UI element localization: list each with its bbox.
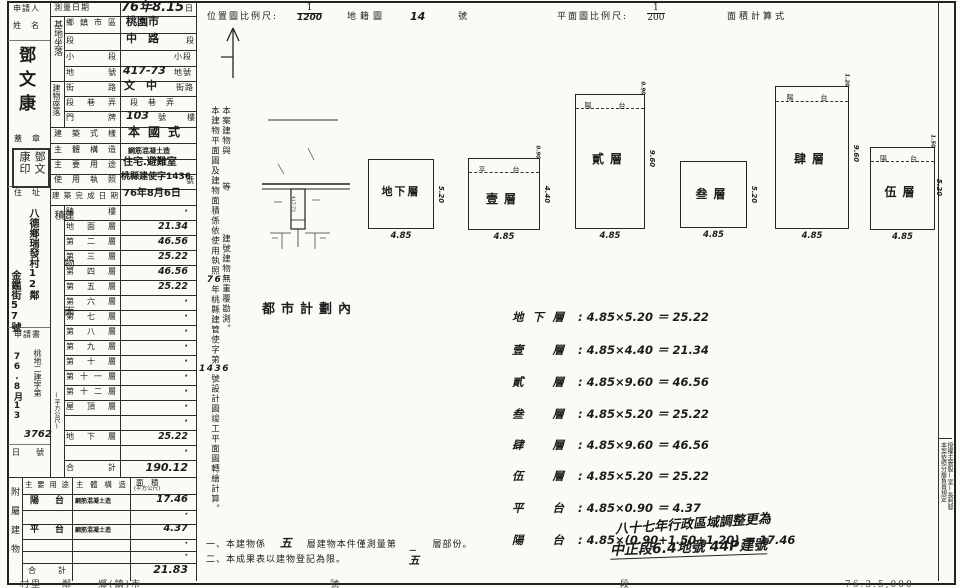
floorplan-strip: 陽 台 0.90 <box>576 95 644 109</box>
info-row-label: 建築式樣 <box>54 130 116 138</box>
application-day-suffix: 日 <box>12 449 21 457</box>
floor-row-label: 第三層 <box>66 253 116 261</box>
site-row-value: 417-73 <box>123 65 166 76</box>
floorplan-width: 4.85 <box>681 231 746 240</box>
floorplan-name: 壹層 <box>469 193 539 205</box>
calc-label: 平台 <box>512 503 564 515</box>
cutoff-text: 76.3.5,000 <box>845 581 914 588</box>
floor-row-label: 第七層 <box>66 313 116 321</box>
building-row-label: 街路 <box>66 84 116 92</box>
floor-row-value: 21.34 <box>124 222 188 232</box>
floorplan-strip: 陽 台 1.20 <box>776 87 848 102</box>
info-row-label: 主體構造 <box>54 146 116 154</box>
annex-header-area-unit: (平方公尺) <box>134 487 160 493</box>
note1-hand-range: 一五 <box>409 548 421 566</box>
floorplan-strip: 陽 台 1.50 <box>871 148 934 162</box>
floor-row-value: · <box>124 312 188 322</box>
strip-label: 陽 台 <box>585 102 636 110</box>
location-map <box>260 108 356 258</box>
site-row-value: 桃園市 <box>126 16 159 27</box>
plan-scale-fraction: 1200 <box>647 4 665 23</box>
floorplan-height: 9.60 <box>852 145 859 162</box>
cutoff-text: 號 <box>330 581 341 588</box>
floor-row-value: · <box>124 342 188 352</box>
site-row-suffix: 小段 <box>174 53 192 61</box>
floorplan-basement: 地下層 4.85 5.20 <box>368 159 434 229</box>
scanned-survey-form: 測量日期 76年8.15 日 位置圖比例尺: 11200 地籍圖 14 號 平面… <box>0 0 960 588</box>
plan-scale-label: 平面圖比例尺: <box>557 13 628 22</box>
calc-row: 伍層: 4.85×5.20 ＝ 25.22 <box>512 471 912 483</box>
building-row-label: 段巷弄 <box>66 99 116 107</box>
floorplan-name: 貳層 <box>576 153 644 165</box>
seal-label: 蓋 章 <box>14 135 41 143</box>
note-a-part1: 本建物平面圖及建物面積係依使用執照 <box>210 106 220 276</box>
annex-row-use: 平台 <box>30 526 64 535</box>
strip-dim: 1.20 <box>844 73 850 87</box>
authority-strip-left: 本案依照分層負責規定 <box>939 442 946 578</box>
note1-prefix: 一、本建物係 <box>206 540 266 550</box>
info-row-value: 鋼筋混凝土造 <box>128 147 170 154</box>
strip-label: 陽 台 <box>880 155 925 163</box>
site-row-label: 地號 <box>66 69 116 77</box>
location-scale-fraction: 11200 <box>297 4 322 23</box>
floor-row-value: 25.22 <box>124 432 188 442</box>
note1-middle: 層建物本件僅測量第 <box>307 540 397 550</box>
floorplan-floor4: 陽 台 1.20 肆層 4.85 9.60 <box>775 86 849 229</box>
address-line1: 八德鄉瑞發村12鄰 <box>27 208 37 328</box>
calc-label: 壹層 <box>512 345 564 357</box>
cutoff-text: 段 <box>620 581 631 588</box>
calc-row: 地下層: 4.85×5.20 ＝ 25.22 <box>512 312 912 324</box>
building-group-label: 建物座落 <box>52 84 60 126</box>
calc-row: 叁層: 4.85×5.20 ＝ 25.22 <box>512 409 912 421</box>
floorplan-height: 4.40 <box>543 185 550 202</box>
info-row-value: 住宅.避難室 <box>123 158 177 168</box>
site-row-label: 段 <box>66 37 116 45</box>
floor-row-value: · <box>124 372 188 382</box>
strip-label: 陽 台 <box>787 94 838 102</box>
calc-formula: : 4.85×0.90 ＝ 4.37 <box>578 501 701 515</box>
note1-hand-floors: 五 <box>280 536 293 550</box>
floorplan-floor5: 陽 台 1.50 伍層 4.85 5.20 <box>870 147 935 230</box>
calc-label: 陽台 <box>512 535 564 547</box>
floorplan-name: 伍層 <box>871 186 934 198</box>
calc-formula: : 4.85×5.20 ＝ 25.22 <box>578 407 709 421</box>
vertical-note-no-duplicate: 本案建物與等建號建物無重覆勘測。 <box>221 106 230 446</box>
cadastral-map-suffix: 號 <box>458 13 467 22</box>
strip-label: 平 台 <box>479 166 530 174</box>
address-label: 住 址 <box>14 189 41 197</box>
applicant-title-line1: 申請人 <box>13 5 40 13</box>
annex-row-area: · <box>132 511 188 520</box>
floor-row-label: 地下層 <box>66 433 116 441</box>
floor-row-value: 46.56 <box>124 267 188 277</box>
calc-formula: : 4.85×5.20 ＝ 25.22 <box>578 469 709 483</box>
building-row-suffix: 段 巷 弄 <box>130 99 175 107</box>
floor-total-value: 190.12 <box>124 462 188 473</box>
application-label: 申請書 <box>14 331 41 339</box>
calc-row: 平台: 4.85×0.90 ＝ 4.37 <box>512 503 912 515</box>
floorplan-height: 9.60 <box>648 150 655 167</box>
note-a-part2: 年桃縣建管使字第 <box>210 285 220 365</box>
annex-header-structure: 主體構造 <box>76 481 126 489</box>
note-b-part2: 建號建物無重覆勘測。 <box>221 234 231 334</box>
survey-date-suffix: 日 <box>185 5 194 13</box>
floor-row-value: · <box>124 297 188 307</box>
floor-row-value: · <box>124 447 188 457</box>
floor-row-label: 騎樓 <box>66 208 116 216</box>
calc-formula: : 4.85×9.60 ＝ 46.56 <box>578 375 709 389</box>
map-lot-number: 417-73 <box>290 196 295 212</box>
location-scale-label: 位置圖比例尺: <box>207 13 278 22</box>
floor-row-value: · <box>124 207 188 217</box>
floor-row-label: 地面層 <box>66 223 116 231</box>
calc-label: 肆層 <box>512 440 564 452</box>
calc-row: 貳層: 4.85×9.60 ＝ 46.56 <box>512 377 912 389</box>
floorplan-strip: 平 台 0.90 <box>469 159 539 173</box>
calc-row: 壹層: 4.85×4.40 ＝ 21.34 <box>512 345 912 357</box>
note-b-part1: 本案建物與 <box>221 106 231 156</box>
floor-table-unit-label: (平方公尺) <box>53 392 59 470</box>
annex-row-structure: 鋼筋混凝土造 <box>75 499 129 505</box>
location-scale-denominator: 1200 <box>297 13 322 23</box>
floor-row-label: 第八層 <box>66 328 116 336</box>
building-row-suffix: 號 <box>158 114 167 122</box>
calc-label: 叁層 <box>512 409 564 421</box>
cutoff-text: 鄰 <box>62 581 73 588</box>
floorplan-name: 地下層 <box>369 186 433 197</box>
floorplan-width: 4.85 <box>576 232 644 241</box>
floor-row-value: · <box>124 402 188 412</box>
building-row-value: 103 <box>126 110 149 121</box>
floor-row-label: 第六層 <box>66 298 116 306</box>
floor-row-label: 屋頂層 <box>66 403 116 411</box>
survey-date-value: 76年8.15 <box>121 1 184 14</box>
info-row-suffix: 號 <box>186 177 195 185</box>
floor-row-label: 第九層 <box>66 343 116 351</box>
annex-row-area: 4.37 <box>132 524 188 534</box>
calc-label: 貳層 <box>512 377 564 389</box>
annex-row-area: 17.46 <box>132 495 188 505</box>
cadastral-map-number: 14 <box>410 11 425 22</box>
floorplan-floor1: 平 台 0.90 壹層 4.85 4.40 <box>468 158 540 230</box>
floor-row-label: 第四層 <box>66 268 116 276</box>
floorplan-width: 4.85 <box>871 233 934 242</box>
annex-total-label: 合計 <box>28 567 66 575</box>
floor-row-value: 25.22 <box>124 282 188 292</box>
note1-suffix: 層部份。 <box>433 540 473 550</box>
calc-formula: : 4.85×9.60 ＝ 46.56 <box>578 438 709 452</box>
note-b-etc: 等 <box>221 182 231 192</box>
floorplan-name: 肆層 <box>776 153 848 165</box>
calc-formula: : 4.85×5.20 ＝ 25.22 <box>578 310 709 324</box>
calc-row: 肆層: 4.85×9.60 ＝ 46.56 <box>512 440 912 452</box>
floor-row-label: 第二層 <box>66 238 116 246</box>
site-row-suffix: 段 <box>186 37 195 45</box>
floor-row-label: 第十一層 <box>66 373 116 381</box>
strip-dim: 0.90 <box>640 81 646 95</box>
strip-dim: 0.90 <box>535 145 541 159</box>
building-row-suffix2: 樓 <box>187 114 196 122</box>
area-calc-label: 面積計算式 <box>727 13 787 22</box>
annex-row-structure: 鋼筋混凝土造 <box>75 528 129 534</box>
info-row-value: 桃縣建使字1436 <box>121 173 191 182</box>
floor-row-label: 第十二層 <box>66 388 116 396</box>
zoning-note: 都市計劃內 <box>262 303 357 316</box>
floor-total-label: 合計 <box>66 464 116 472</box>
floor-row-value: · <box>124 417 188 427</box>
floor-row-value: · <box>124 327 188 337</box>
strip-dim: 1.50 <box>930 134 936 148</box>
site-row-label: 小段 <box>66 53 116 61</box>
application-number-suffix: 號 <box>36 449 45 457</box>
cutoff-text: 村里 <box>20 581 42 588</box>
site-row-label: 鄉鎮市區 <box>66 19 116 27</box>
floorplan-width: 4.85 <box>776 232 848 241</box>
applicant-seal: 鄧文康印 <box>12 148 50 188</box>
cadastral-map-label: 地籍圖 <box>347 13 386 22</box>
application-date: 76.8月13 <box>12 352 21 432</box>
floor-row-value: · <box>124 357 188 367</box>
note-a-hand-year: 76 <box>207 276 223 285</box>
applicant-title-line2: 姓 名 <box>13 22 40 30</box>
note1-hand-range-bottom: 五 <box>409 555 421 566</box>
plan-scale-denominator: 200 <box>647 13 664 23</box>
floorplan-width: 4.85 <box>369 232 433 241</box>
site-row-value: 中 路 <box>126 33 159 44</box>
info-row-value: 本國式 <box>128 126 188 138</box>
floorplan-height: 5.20 <box>437 185 444 202</box>
annex-row-area: · <box>132 552 188 561</box>
annex-row-use: 陽台 <box>30 497 64 506</box>
site-group-label: 基地坐落 <box>52 20 61 78</box>
calc-label: 地下層 <box>512 312 564 324</box>
building-row-suffix: 街路 <box>176 84 194 92</box>
calc-formula: : 4.85×4.40 ＝ 21.34 <box>578 343 709 357</box>
annex-row-area: · <box>132 540 188 549</box>
info-row-label: 主要用途 <box>54 161 116 169</box>
floor-row-label: 第五層 <box>66 283 116 291</box>
building-row-label: 門牌 <box>66 114 116 122</box>
annex-total-value: 21.83 <box>132 564 188 575</box>
site-row-suffix: 地號 <box>174 69 192 77</box>
floor-row-value: 46.56 <box>124 237 188 247</box>
application-number: 3762 <box>24 430 52 440</box>
annex-group-label: 附屬建物 <box>9 487 18 571</box>
floorplan-height: 5.20 <box>935 179 942 196</box>
calc-label: 伍層 <box>512 471 564 483</box>
info-row-label: 使用執照 <box>54 176 116 184</box>
floorplan-width: 4.85 <box>469 233 539 242</box>
authority-strip: 授權主管股(室)長判發 本案依照分層負責規定 <box>939 442 952 578</box>
bottom-note-2: 二、本成果表以建物登記為限。 <box>206 556 346 565</box>
floorplan-floor2: 陽 台 0.90 貳層 4.85 9.60 <box>575 94 645 229</box>
floorplan-height: 5.20 <box>750 186 757 203</box>
floorplan-floor3: 叁層 4.85 5.20 <box>680 161 747 228</box>
note-a-part3: 號設計圖竣工平面圖轉繪計算。 <box>210 374 220 514</box>
floor-row-label: 第十層 <box>66 358 116 366</box>
info-row-label: 建築完成日期 <box>52 192 118 200</box>
survey-date-label: 測量日期 <box>54 4 116 12</box>
info-row-value: 76年8月6日 <box>123 189 181 199</box>
floor-row-value: · <box>124 387 188 397</box>
applicant-name: 鄧文康 <box>16 46 33 138</box>
north-arrow-icon <box>220 24 246 82</box>
floor-row-value: 25.22 <box>124 252 188 262</box>
building-row-value: 文 中 <box>124 80 157 91</box>
cutoff-text: 鄉(鎮)市 <box>98 581 142 588</box>
annex-header-use: 主要用途 <box>25 481 69 489</box>
floorplan-name: 叁層 <box>681 188 746 200</box>
